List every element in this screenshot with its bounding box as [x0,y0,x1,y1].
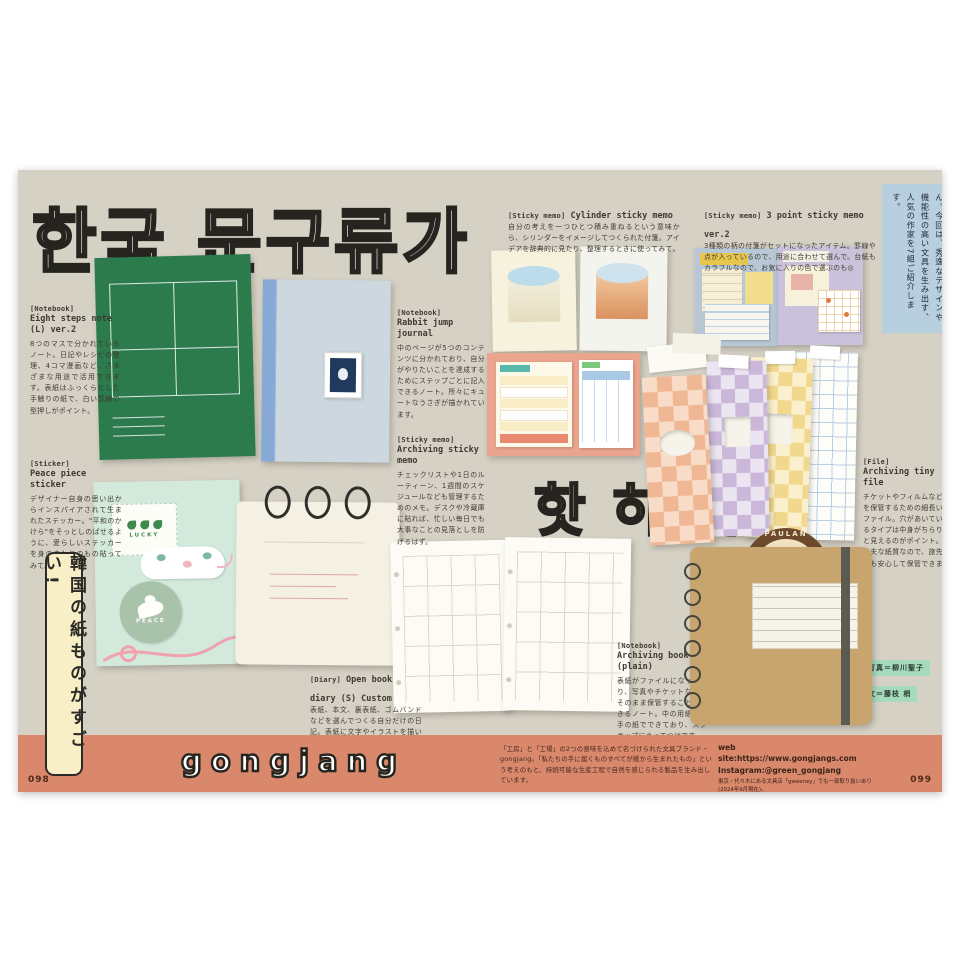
memo-row [500,422,568,431]
caption-body: チケットやフィルムなどを保管するための細長いファイル。穴があいているタイプは中身… [863,492,942,580]
calendar-grid [515,551,623,701]
file-window [658,429,695,457]
caption-body: 8つのマスで分かれているノート。日記やレシピの整理、4コマ漫画など、さまざまな用… [30,339,120,416]
cover-line [264,542,364,544]
weekly-grid-memo-pad [579,360,633,448]
coil-icon [684,692,701,709]
dot-marker [844,312,849,317]
clover-icon [140,520,149,529]
caption-body: チェックリストや1日のルーティーン、1週間のスケジュールなども管理するためのメモ… [397,470,485,547]
brand-logo: gongjang [181,744,406,778]
lavender-check-tiny-file [706,360,769,536]
notebook-grid-lines [109,280,240,397]
coil-icon [684,589,701,606]
cylinder-top [596,263,648,284]
punch-hole [507,623,512,628]
ticket-card [672,333,721,355]
binder-rings [265,486,371,520]
caption-rabbit-journal: [Notebook] Rabbit jump journal 中のページが5つの… [397,309,485,421]
cover-line [270,574,358,576]
caption-tag: [Sticky memo] [704,212,761,220]
grid-vertical-line [173,283,177,395]
intro-text-box: 音楽やドラマ、ファッションなど、多様なジャンルでブームを生み出している韓国。もち… [882,184,942,333]
clover-icons [127,520,162,530]
caption-tag: [File] [863,458,942,466]
caption-body: 3種類の柄の付箋がセットになったアイテム。罫線や点が入っているので、用途に合わせ… [704,241,876,274]
coil-icon [684,666,701,683]
yellow-note [745,272,773,304]
monthly-planner-page [503,537,631,712]
rabbit-label [324,352,362,398]
caption-body: 自分の考えを一つひとつ積み重ねるという意味から、シリンダーをイメージしてつくられ… [508,222,680,255]
cylinder-memo-pad-blue [491,249,577,351]
side-banner-text: 韓国の紙ものがすごい! [39,554,89,774]
punch-hole [394,572,399,577]
footer-bar: gongjang 「工房」と「工場」の2つの意味を込めて名づけられた文具ブランド… [18,735,942,792]
notebook-rule-line [113,434,165,436]
file-label-card [765,351,795,365]
rabbit-jump-journal-photo [261,279,391,462]
clover-icon [153,520,162,529]
caption-tag: [Notebook] [30,305,120,313]
dove-wing [144,594,156,604]
side-banner: 韓国の紙ものがすごい! [45,552,83,776]
cat-spot [203,552,212,559]
memo-header-tab [582,362,600,368]
right-page-number: 099 [910,775,932,785]
weekly-memo-pad [496,362,572,447]
caption-title: Peace piece sticker [30,469,122,490]
caption-title: Archiving tiny file [863,467,942,488]
notebook-rule-line [113,425,165,427]
memo-row [500,434,568,443]
ticket-cards [647,341,707,373]
caption-title: Cylinder sticky memo [570,211,672,221]
caption-tag: [Sticky memo] [508,212,565,220]
elastic-band [841,547,850,725]
punch-hole [508,569,513,574]
cover-line [270,598,348,600]
caption-tag: [Sticky memo] [397,436,485,444]
caption-tag: [Notebook] [397,309,485,317]
text-credit: 文＝藤枝 梢 [868,690,911,698]
memo-row [500,399,568,408]
peach-check-tiny-file [642,374,715,545]
caption-body: 中のページが5つのコンテンツに分かれており、自分がやりたいことを達成するためにス… [397,343,485,420]
memo-row [500,410,568,421]
caption-tiny-file: [File] Archiving tiny file チケットやフィルムなどを保… [863,458,942,581]
cat-spot [157,554,166,561]
file-label-card [718,354,749,369]
coil-icon [684,563,701,580]
notebook-spine [261,279,277,461]
archiving-memo-photo [487,353,640,456]
cover-line [270,586,336,588]
caption-title: Rabbit jump journal [397,318,485,339]
dove-icon [136,598,165,618]
clover-icon [127,521,136,530]
file-window [766,414,793,445]
rabbit-label-art [330,358,356,392]
memo-row [500,376,568,385]
note-color-block [791,274,813,290]
cat-tail [217,554,233,568]
left-page-number: 098 [28,775,50,785]
caption-title: Archiving sticky memo [397,445,485,466]
cat-spot [183,561,192,568]
memo-row [500,387,568,398]
coil-icon [684,615,701,632]
magazine-spread: 한국 문구류가 핫 하 다 ! 音楽やドラマ、ファッションなど、多様なジャンルで… [18,170,942,792]
rabbit-icon [338,368,348,380]
caption-archiving-memo: [Sticky memo] Archiving sticky memo チェック… [397,436,485,548]
memo-header-band [582,371,630,380]
open-book-diary-photo [235,501,399,665]
archiving-book-photo [690,547,872,725]
caption-tag: [Diary] [310,676,341,684]
photo-credit: 写真＝柳川聖子 [868,664,924,672]
file-window [724,417,751,447]
bread-logo-text: PAULAN [764,530,807,538]
caption-tag: [Sticker] [30,460,122,468]
website-link[interactable]: web site:https://www.gongjangs.com [718,742,876,765]
caption-title: Eight steps note (L) ver.2 [30,314,120,335]
spiral-binding [684,563,701,709]
punch-hole [395,626,400,631]
intro-text: 音楽やドラマ、ファッションなど、多様なジャンルでブームを生み出している韓国。もち… [889,193,942,324]
file-label-card [810,345,841,360]
ring-icon [265,486,291,519]
ring-icon [345,486,371,519]
caption-eight-steps: [Notebook] Eight steps note (L) ver.2 8つ… [30,305,120,417]
cylinder-memo-pad-orange [579,247,667,352]
caption-three-point-memo: [Sticky memo] 3 point sticky memo ver.2 … [704,203,876,274]
grid-note [818,290,860,332]
punch-hole [506,677,511,682]
ring-icon [305,486,331,519]
lucky-label: LUCKY [129,532,159,539]
footer-links: web site:https://www.gongjangs.com Insta… [718,742,876,792]
coil-icon [684,640,701,657]
notebook-rule-line [113,416,165,418]
footer-note: 東京・代々木にある文具店「gweeney」でも一部取り扱いあり(2024年9月現… [718,778,876,792]
dot-marker [826,298,831,303]
memo-grid [582,380,630,442]
instagram-link[interactable]: Instagram:@green_gongjang [718,765,876,776]
memo-header-tab [500,365,530,372]
photo-credit-badge: 写真＝柳川聖子 [862,660,930,676]
caption-cylinder-memo: [Sticky memo] Cylinder sticky memo 自分の考え… [508,203,680,255]
brand-description: 「工房」と「工場」の2つの意味を込めて名づけられた文具ブランド・gongjang… [500,744,716,785]
cat-sticker [141,546,226,579]
